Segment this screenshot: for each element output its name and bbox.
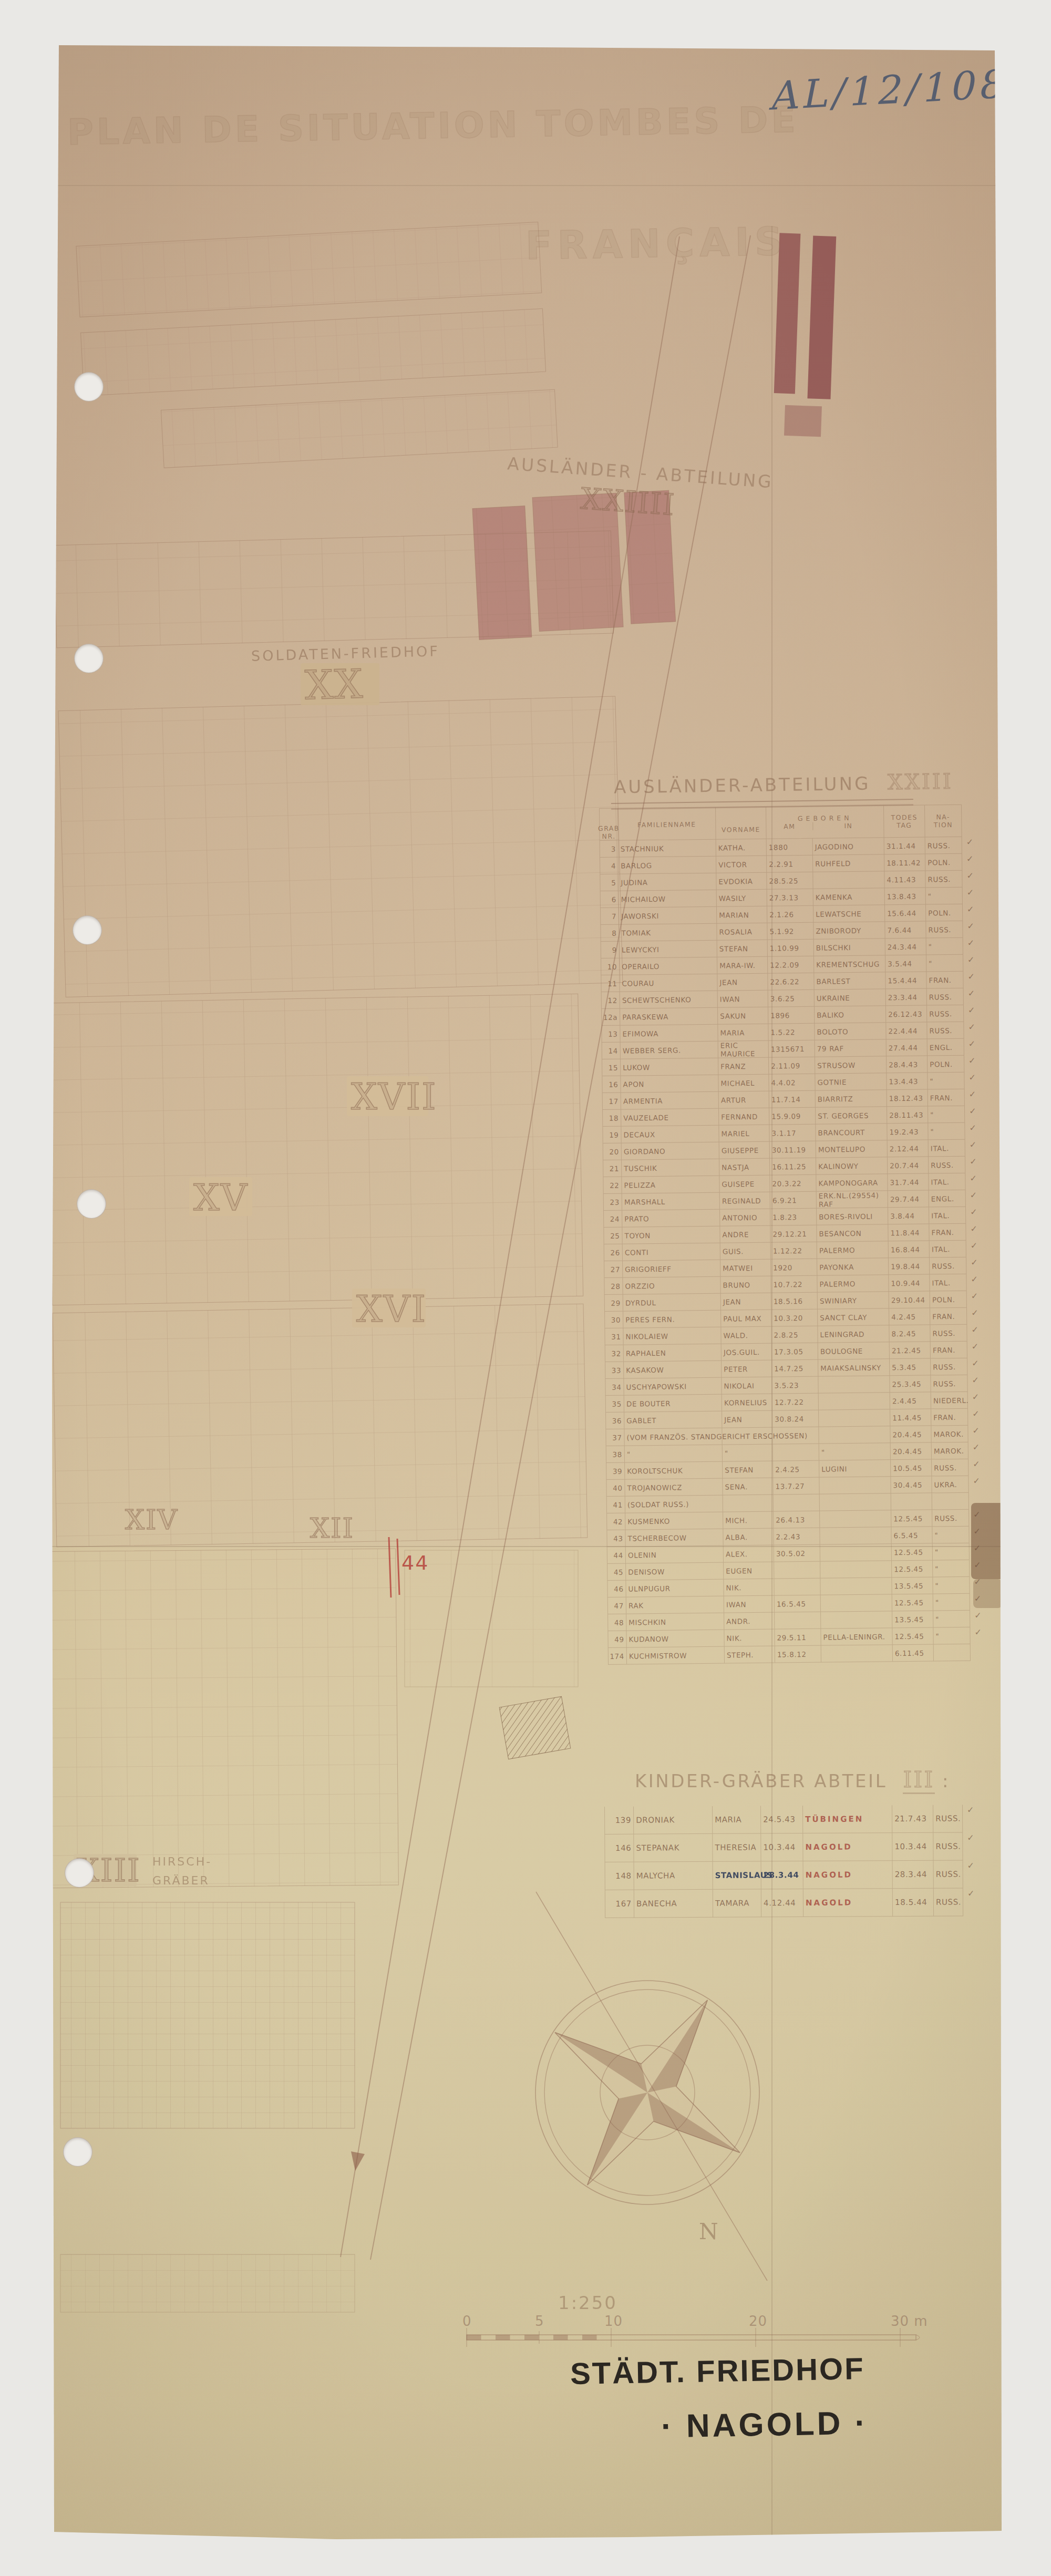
cell-nation: RUSS. — [927, 1022, 964, 1039]
cell-vorname: PETER — [722, 1361, 772, 1377]
cell-geboren: 10.3.44 — [761, 1833, 803, 1861]
cell-grab-nr: 33 — [605, 1362, 624, 1378]
cell-familienname: OPERAILO — [620, 957, 717, 975]
cell-geboren-in: MAIAKSALINSKY — [818, 1359, 890, 1376]
check-mark: ✓ — [973, 1459, 980, 1469]
cell-grab-nr: 38 — [606, 1446, 625, 1462]
cell-geboren-in: ERK.NL.(29554) RAF — [817, 1191, 888, 1208]
cell-nation: FRAN. — [930, 1308, 967, 1325]
cell-familienname: DRONIAK — [634, 1806, 713, 1834]
cell-familienname: LEWYCKYI — [620, 941, 717, 958]
cell-vorname: MATWEI — [720, 1260, 771, 1276]
cell-geboren-in: BOULOGNE — [818, 1342, 890, 1359]
cell-todestag: 30.4.45 — [891, 1476, 932, 1493]
cell-geboren-am: 2.11.09 — [769, 1057, 815, 1074]
cell-familienname: ULNPUGUR — [626, 1580, 724, 1597]
check-mark: ✓ — [967, 972, 975, 982]
cell-vorname: WASILY — [717, 890, 767, 906]
map-numeral-xv: XV — [193, 1176, 248, 1219]
check-mark: ✓ — [974, 1610, 982, 1620]
cell-geboren-in: ZNIBORODY — [813, 922, 885, 939]
cell-nation: " — [933, 1594, 970, 1611]
cell-familienname: DYRDUL — [623, 1294, 721, 1311]
cell-familienname: ARMENTIA — [621, 1092, 719, 1109]
cell-geboren-in: GOTNIE — [815, 1073, 887, 1090]
check-mark: ✓ — [972, 1358, 979, 1368]
cell-grab-nr: 10 — [601, 959, 620, 975]
cell-vorname: MARIEL — [719, 1125, 769, 1142]
kinder-table-title: KINDER-GRÄBER ABTEIL III : — [635, 1767, 950, 1792]
cell-todestag: 28.11.43 — [887, 1106, 928, 1123]
cell-nation: " — [933, 1560, 970, 1577]
cell-geboren: 28.3.44 — [761, 1861, 803, 1889]
cell-grab-nr: 148 — [605, 1862, 634, 1890]
cell-geboren-am: 10.7.22 — [771, 1276, 817, 1293]
cell-vorname — [723, 1495, 774, 1512]
cell-geboren-am: 30.5.02 — [774, 1545, 820, 1562]
cell-vorname: MICH. — [723, 1512, 774, 1529]
cell-grab-nr: 9 — [601, 942, 620, 958]
cell-vorname: MARA-IW. — [717, 957, 768, 974]
cell-vorname: ALEX. — [724, 1545, 774, 1562]
cell-nation: RUSS. — [933, 1805, 963, 1832]
cell-grab-nr: 34 — [605, 1379, 624, 1395]
check-mark: ✓ — [974, 1560, 981, 1570]
table-row: 148MALYCHASTANISLAUS28.3.44NAGOLD28.3.44… — [605, 1860, 963, 1890]
cell-geboren-am: 30.11.19 — [770, 1141, 816, 1158]
table-row: 146STEPANAKTHERESIA10.3.44NAGOLD10.3.44R… — [604, 1832, 963, 1862]
cell-nation: RUSS. — [925, 871, 962, 888]
check-mark: ✓ — [974, 1627, 982, 1637]
check-mark: ✓ — [969, 1089, 976, 1099]
map-numeral-xx: XX — [304, 661, 365, 709]
cell-geboren-am: 16.11.25 — [770, 1158, 816, 1175]
cell-geboren-am: 5.1.92 — [767, 923, 813, 940]
cell-familienname: GRIGORIEFF — [623, 1260, 720, 1277]
cell-geboren-in: LENINGRAD — [818, 1325, 889, 1342]
cell-todestag: 4.2.45 — [889, 1308, 930, 1325]
cell-todestag: 2.4.45 — [890, 1392, 931, 1409]
cell-familienname: USCHYAPOWSKI — [624, 1378, 722, 1395]
cell-nation: " — [928, 1123, 965, 1140]
cell-geboren-in — [819, 1426, 890, 1443]
fold-crease-top — [0, 185, 1051, 186]
cell-nation: FRAN. — [926, 972, 963, 988]
cell-geboren-in — [820, 1544, 892, 1561]
punch-hole-4 — [77, 1189, 106, 1219]
map-numeral-xxiiii: XXIIII — [580, 481, 676, 522]
check-mark: ✓ — [970, 1207, 977, 1217]
cell-todestag: 19.2.43 — [887, 1123, 928, 1140]
cell-vorname: GUISEPE — [719, 1176, 770, 1192]
cell-todestag: 20.4.45 — [890, 1426, 931, 1442]
cell-grab-nr: 12a — [601, 1009, 620, 1025]
check-mark: ✓ — [968, 1039, 976, 1049]
cell-geboren-am: 17.3.05 — [772, 1343, 818, 1360]
kinder-table-title-colon: : — [942, 1770, 950, 1791]
cell-geboren-in: BARLEST — [814, 972, 885, 989]
cell-nation: RUSS. — [933, 1832, 963, 1860]
cell-vorname: THERESIA — [713, 1833, 761, 1861]
cell-familienname: BARLOG — [619, 857, 716, 874]
cell-sterbeort: TÜBINGEN — [803, 1805, 892, 1833]
cell-grab-nr: 48 — [607, 1614, 626, 1631]
cell-todestag: 4.11.43 — [884, 871, 925, 888]
cell-familienname: TUSCHIK — [622, 1159, 719, 1177]
cell-geboren-am: 1.8.23 — [770, 1209, 817, 1225]
cell-nation: ENGL. — [928, 1039, 964, 1056]
cell-nation: FRAN. — [931, 1409, 968, 1426]
cell-todestag: 13.5.45 — [892, 1611, 933, 1627]
cell-nation: NIEDERL. — [931, 1392, 968, 1409]
check-mark: ✓ — [967, 904, 974, 914]
cell-grab-nr: 8 — [600, 925, 619, 941]
cell-nation: RUSS. — [929, 1157, 965, 1173]
cell-nation: " — [926, 938, 963, 955]
cell-todestag: 12.5.45 — [892, 1543, 933, 1560]
cell-geboren-in: BILSCHKI — [814, 939, 885, 955]
cell-todestag: 10.5.45 — [891, 1459, 932, 1476]
cell-vorname: NASTJA — [719, 1159, 770, 1176]
cell-grab-nr: 46 — [607, 1581, 626, 1597]
cell-vorname: NIK. — [724, 1630, 775, 1646]
cell-geboren-in: " — [819, 1443, 891, 1460]
cell-todestag: 12.5.45 — [891, 1510, 932, 1527]
cell-grab-nr: 39 — [606, 1463, 625, 1479]
cell-nation: ITAL. — [930, 1274, 966, 1291]
cell-geboren-in: MONTELUPO — [816, 1140, 888, 1157]
cell-familienname: DECAUX — [621, 1126, 719, 1143]
cell-geboren-in — [819, 1477, 891, 1493]
cell-geboren-am — [774, 1579, 820, 1595]
cell-nation: RUSS. — [931, 1375, 967, 1392]
cell-familienname: PARASKEWA — [620, 1008, 718, 1025]
check-mark: ✓ — [970, 1157, 977, 1167]
check-mark: ✓ — [973, 1526, 981, 1536]
check-mark: ✓ — [971, 1241, 978, 1251]
cell-geboren-in: KAMPONOGARA — [816, 1174, 888, 1191]
cell-familienname: MARSHALL — [622, 1193, 720, 1210]
cell-grab-nr: 12 — [601, 992, 620, 1008]
cell-geboren-am — [774, 1495, 820, 1511]
cell-grab-nr: 49 — [607, 1631, 626, 1647]
punch-hole-1 — [74, 372, 104, 401]
cell-grab-nr: 24 — [603, 1211, 622, 1227]
cell-familienname: KUDANOW — [626, 1630, 724, 1647]
cell-grab-nr: 22 — [603, 1177, 622, 1193]
cell-todestag: 28.3.44 — [893, 1861, 934, 1888]
cell-grab-nr: 44 — [607, 1547, 626, 1563]
cell-nation: " — [933, 1577, 970, 1594]
cell-familienname: PERES FERN. — [623, 1311, 721, 1328]
check-mark: ✓ — [968, 988, 975, 998]
cell-nation: RUSS. — [934, 1888, 963, 1915]
cell-grab-nr: 146 — [604, 1835, 634, 1862]
cell-familienname: WEBBER SERG. — [621, 1042, 718, 1059]
cell-grab-nr: 4 — [600, 858, 619, 874]
cell-grab-nr: 31 — [604, 1328, 623, 1345]
cell-nation: RUSS. — [927, 988, 964, 1005]
cell-grab-nr: 28 — [604, 1278, 623, 1294]
check-mark: ✓ — [970, 1190, 977, 1200]
cell-todestag: 2.12.44 — [888, 1140, 929, 1157]
cell-grab-nr: 37 — [605, 1429, 624, 1446]
map-numeral-xii: XII — [310, 1512, 354, 1544]
cell-grab-nr: 21 — [603, 1160, 622, 1177]
check-mark: ✓ — [972, 1375, 979, 1385]
cell-geboren-in — [820, 1527, 891, 1544]
scale-tick-label: 20 — [749, 2313, 767, 2329]
punch-hole-3 — [73, 915, 102, 945]
cell-nation: " — [926, 955, 963, 972]
check-mark: ✓ — [972, 1392, 980, 1402]
cell-familienname: RAPHALEN — [624, 1344, 722, 1362]
cell-vorname: TAMARA — [713, 1889, 761, 1916]
compass-north-label: N — [699, 2219, 719, 2244]
cell-nation: " — [933, 1543, 970, 1560]
cell-todestag: 13.5.45 — [892, 1577, 933, 1594]
cell-nation — [934, 1644, 971, 1661]
cell-familienname: STEPANAK — [634, 1834, 713, 1862]
cell-geboren-am: 16.5.45 — [775, 1595, 821, 1612]
cell-nation: RUSS. — [926, 921, 963, 938]
check-mark: ✓ — [973, 1509, 981, 1519]
auslaender-table-title-numeral: XXIII — [888, 769, 953, 794]
cell-familienname: KOROLTSCHUK — [625, 1462, 723, 1479]
red-annotation-44: 44 — [401, 1551, 429, 1574]
cell-nation: " — [932, 1527, 969, 1543]
cell-familienname: VAUZELADE — [621, 1109, 719, 1126]
cell-familienname: DE BOUTER — [624, 1395, 722, 1412]
scanned-cemetery-plan: PLAN DE SITUATION TOMBES DE FRANÇAIS AL/… — [0, 0, 1051, 2576]
cell-familienname: JAWORSKI — [619, 907, 717, 924]
cell-nation: POLN. — [925, 854, 962, 871]
cell-todestag: 21.2.45 — [890, 1342, 931, 1358]
cell-vorname: ALBA. — [723, 1529, 774, 1545]
cell-familienname: GIORDANO — [622, 1142, 719, 1160]
check-mark: ✓ — [972, 1408, 980, 1418]
cell-todestag: 29.7.44 — [888, 1190, 929, 1207]
cell-grab-nr: 25 — [603, 1228, 622, 1244]
cell-todestag: 5.3.45 — [890, 1358, 931, 1375]
cell-familienname: " — [625, 1445, 723, 1462]
cell-geboren-am: 3.1.17 — [769, 1125, 816, 1141]
check-mark: ✓ — [968, 1073, 976, 1083]
cell-nation: " — [933, 1627, 970, 1644]
cell-geboren-am: 29.12.21 — [770, 1225, 817, 1242]
cell-familienname: OLENIN — [626, 1546, 724, 1563]
cell-vorname: GIUSEPPE — [719, 1142, 770, 1159]
cell-geboren-am: 2.1.26 — [767, 906, 813, 923]
cell-grab-nr: 15 — [602, 1059, 621, 1076]
header-vorname: VORNAME — [716, 807, 767, 839]
cell-familienname: MALYCHA — [634, 1862, 713, 1890]
check-mark: ✓ — [970, 1224, 977, 1234]
cell-todestag: 11.4.45 — [890, 1409, 931, 1426]
cell-geboren-am: 20.3.22 — [770, 1175, 816, 1192]
cell-familienname: TROJANOWICZ — [625, 1479, 723, 1496]
cell-familienname: KASAKOW — [624, 1361, 722, 1378]
map-label-hirsch-line2: GRÄBER — [152, 1874, 210, 1887]
map-numeral-xvi: XVI — [356, 1287, 427, 1331]
cell-vorname: " — [723, 1445, 773, 1461]
cell-geboren-in — [821, 1611, 892, 1628]
cell-geboren-am: 26.4.13 — [774, 1511, 820, 1528]
cell-familienname: STACHNIUK — [619, 840, 716, 857]
cell-vorname: PAUL MAX — [721, 1310, 771, 1327]
cell-todestag: 13.4.43 — [887, 1073, 928, 1089]
cell-todestag: 12.5.45 — [892, 1627, 933, 1644]
cell-geboren-in: PALERMO — [817, 1275, 889, 1292]
cell-vorname: SENA. — [723, 1478, 773, 1495]
punch-hole-5 — [65, 1858, 94, 1888]
cell-grab-nr: 47 — [607, 1598, 626, 1614]
cell-geboren-am: 1896 — [768, 1007, 815, 1024]
cell-vorname: FERNAND — [719, 1108, 769, 1125]
punch-hole-2 — [74, 644, 104, 673]
cell-familienname: MISCHKIN — [626, 1613, 724, 1631]
check-mark: ✓ — [971, 1274, 978, 1284]
cell-nation: ITAL. — [929, 1173, 965, 1190]
cell-todestag: 6.5.45 — [891, 1527, 932, 1543]
check-mark: ✓ — [967, 888, 974, 898]
cell-todestag: 18.12.43 — [887, 1089, 928, 1106]
cell-grab-nr: 29 — [604, 1295, 623, 1311]
cell-todestag: 16.8.44 — [889, 1241, 930, 1258]
cell-vorname: WALD. — [721, 1327, 771, 1344]
cell-geboren-in: KREMENTSCHUG — [814, 955, 885, 972]
cell-geboren-in: KALINOWY — [816, 1157, 888, 1174]
cell-grab-nr: 41 — [606, 1497, 625, 1513]
cell-grab-nr: 16 — [602, 1076, 621, 1093]
cell-familienname: NIKOLAIEW — [623, 1327, 721, 1345]
cell-geboren-am: 11.7.14 — [769, 1091, 816, 1108]
cell-geboren-in — [820, 1561, 892, 1578]
cell-geboren-in: BOLOTO — [815, 1023, 886, 1039]
check-mark: ✓ — [970, 1173, 977, 1183]
cell-grab-nr: 40 — [606, 1480, 625, 1496]
cell-geboren-in: PAYONKA — [817, 1258, 889, 1275]
cell-todestag: 7.6.44 — [885, 921, 926, 938]
cell-familienname: RAK — [626, 1596, 724, 1614]
cell-nation: RUSS. — [925, 837, 962, 854]
punch-hole-6 — [63, 2137, 92, 2167]
cell-vorname: STEFAN — [723, 1461, 773, 1478]
cell-geboren-am: 4.4.02 — [769, 1074, 815, 1091]
scale-ratio: 1:250 — [558, 2292, 617, 2313]
cell-grab-nr: 32 — [605, 1345, 624, 1362]
cell-geboren-am: 2.2.91 — [767, 856, 813, 872]
cell-todestag: 22.4.44 — [886, 1022, 927, 1039]
cell-todestag: 13.8.43 — [885, 888, 926, 904]
cell-todestag: 18.11.42 — [884, 854, 925, 871]
cell-geboren: 4.12.44 — [761, 1889, 803, 1916]
auslaender-table-title: AUSLÄNDER-ABTEILUNG XXIII — [614, 769, 953, 798]
cell-vorname: EUGEN — [724, 1562, 774, 1579]
cell-familienname: ORZZIO — [623, 1277, 720, 1294]
check-mark: ✓ — [967, 1805, 974, 1815]
kinder-table-rows: 139DRONIAKMARIA24.5.43TÜBINGEN21.7.43RUS… — [604, 1805, 963, 1918]
cell-vorname: ANTONIO — [720, 1209, 770, 1226]
cell-nation: ITAL. — [929, 1207, 966, 1224]
cell-vorname: NIKOLAI — [722, 1377, 772, 1394]
cell-familienname: COURAU — [620, 974, 717, 992]
header-geboren: GEBOREN AM IN — [766, 806, 884, 838]
cell-geboren-in: BIARRITZ — [816, 1090, 887, 1107]
cell-grab-nr: 7 — [600, 908, 619, 924]
cell-geboren-am: 13.7.27 — [773, 1478, 819, 1495]
cell-todestag: 19.8.44 — [889, 1258, 930, 1274]
cell-geboren-am: 3.5.23 — [772, 1377, 818, 1394]
cell-geboren-in — [821, 1594, 892, 1611]
cell-grab-nr: 35 — [605, 1396, 624, 1412]
cell-todestag: 10.3.44 — [892, 1833, 933, 1860]
check-mark: ✓ — [966, 854, 974, 864]
cell-familienname: TOMIAK — [619, 924, 717, 941]
cell-vorname: STANISLAUS — [713, 1861, 761, 1889]
cell-nation: FRAN. — [929, 1224, 966, 1241]
cell-geboren-am: 1920 — [771, 1259, 817, 1276]
map-numeral-xiv: XIV — [125, 1504, 178, 1536]
cell-geboren-am: 18.5.16 — [771, 1293, 818, 1310]
cell-geboren-in — [820, 1510, 891, 1527]
header-todestag: TODESTAG — [884, 806, 925, 838]
cell-todestag: 26.12.43 — [886, 1005, 927, 1022]
cell-grab-nr: 42 — [606, 1513, 625, 1530]
cell-familienname: KUSMENKO — [625, 1512, 723, 1530]
check-mark: ✓ — [967, 1832, 974, 1842]
cell-geboren-am — [774, 1562, 820, 1579]
kinder-table: 139DRONIAKMARIA24.5.43TÜBINGEN21.7.43RUS… — [604, 1805, 963, 1918]
check-mark: ✓ — [967, 955, 975, 965]
check-mark: ✓ — [972, 1341, 979, 1351]
cell-vorname: STEPH. — [725, 1646, 775, 1663]
cell-geboren-am: 29.5.11 — [775, 1629, 821, 1646]
cell-geboren-in — [820, 1493, 891, 1510]
cell-todestag: 6.11.45 — [893, 1644, 934, 1661]
cell-vorname — [722, 1428, 772, 1445]
cell-todestag: 27.4.44 — [887, 1039, 928, 1056]
cell-todestag: 12.5.45 — [892, 1594, 933, 1611]
cell-geboren-in — [813, 871, 884, 888]
cell-todestag: 12.5.45 — [892, 1560, 933, 1577]
cell-familienname: JUDINA — [619, 873, 716, 891]
cell-grab-nr: 14 — [602, 1043, 621, 1059]
cell-geboren-am — [773, 1444, 819, 1461]
cell-geboren-in: UKRAINE — [815, 989, 886, 1006]
cell-vorname: ARTUR — [719, 1091, 769, 1108]
header-grab-nr: GRABNR. — [599, 809, 619, 840]
cell-geboren-in: BRANCOURT — [816, 1124, 887, 1140]
cell-todestag — [891, 1493, 932, 1510]
cell-vorname: JEAN — [717, 974, 768, 991]
cell-geboren-am: 1.10.99 — [768, 940, 814, 956]
cell-nation — [932, 1493, 969, 1510]
check-mark: ✓ — [970, 1140, 977, 1150]
cell-todestag: 15.6.44 — [885, 904, 926, 921]
cell-nation: RUSS. — [932, 1510, 969, 1527]
cell-grab-nr: 43 — [606, 1530, 625, 1547]
cell-geboren-am: 12.2.09 — [768, 956, 814, 973]
auslaender-table: GRABNR. FAMILIENNAME VORNAME GEBOREN AM … — [599, 805, 971, 1665]
cell-grab-nr: 3 — [600, 841, 619, 857]
cell-vorname: ANDR. — [724, 1613, 775, 1630]
cell-familienname: KUCHMISTROW — [627, 1647, 725, 1664]
cell-geboren-in — [821, 1645, 893, 1662]
cell-geboren-in: KAMENKA — [813, 888, 885, 905]
cell-geboren-in — [818, 1376, 890, 1393]
cell-nation: RUSS. — [930, 1325, 967, 1342]
